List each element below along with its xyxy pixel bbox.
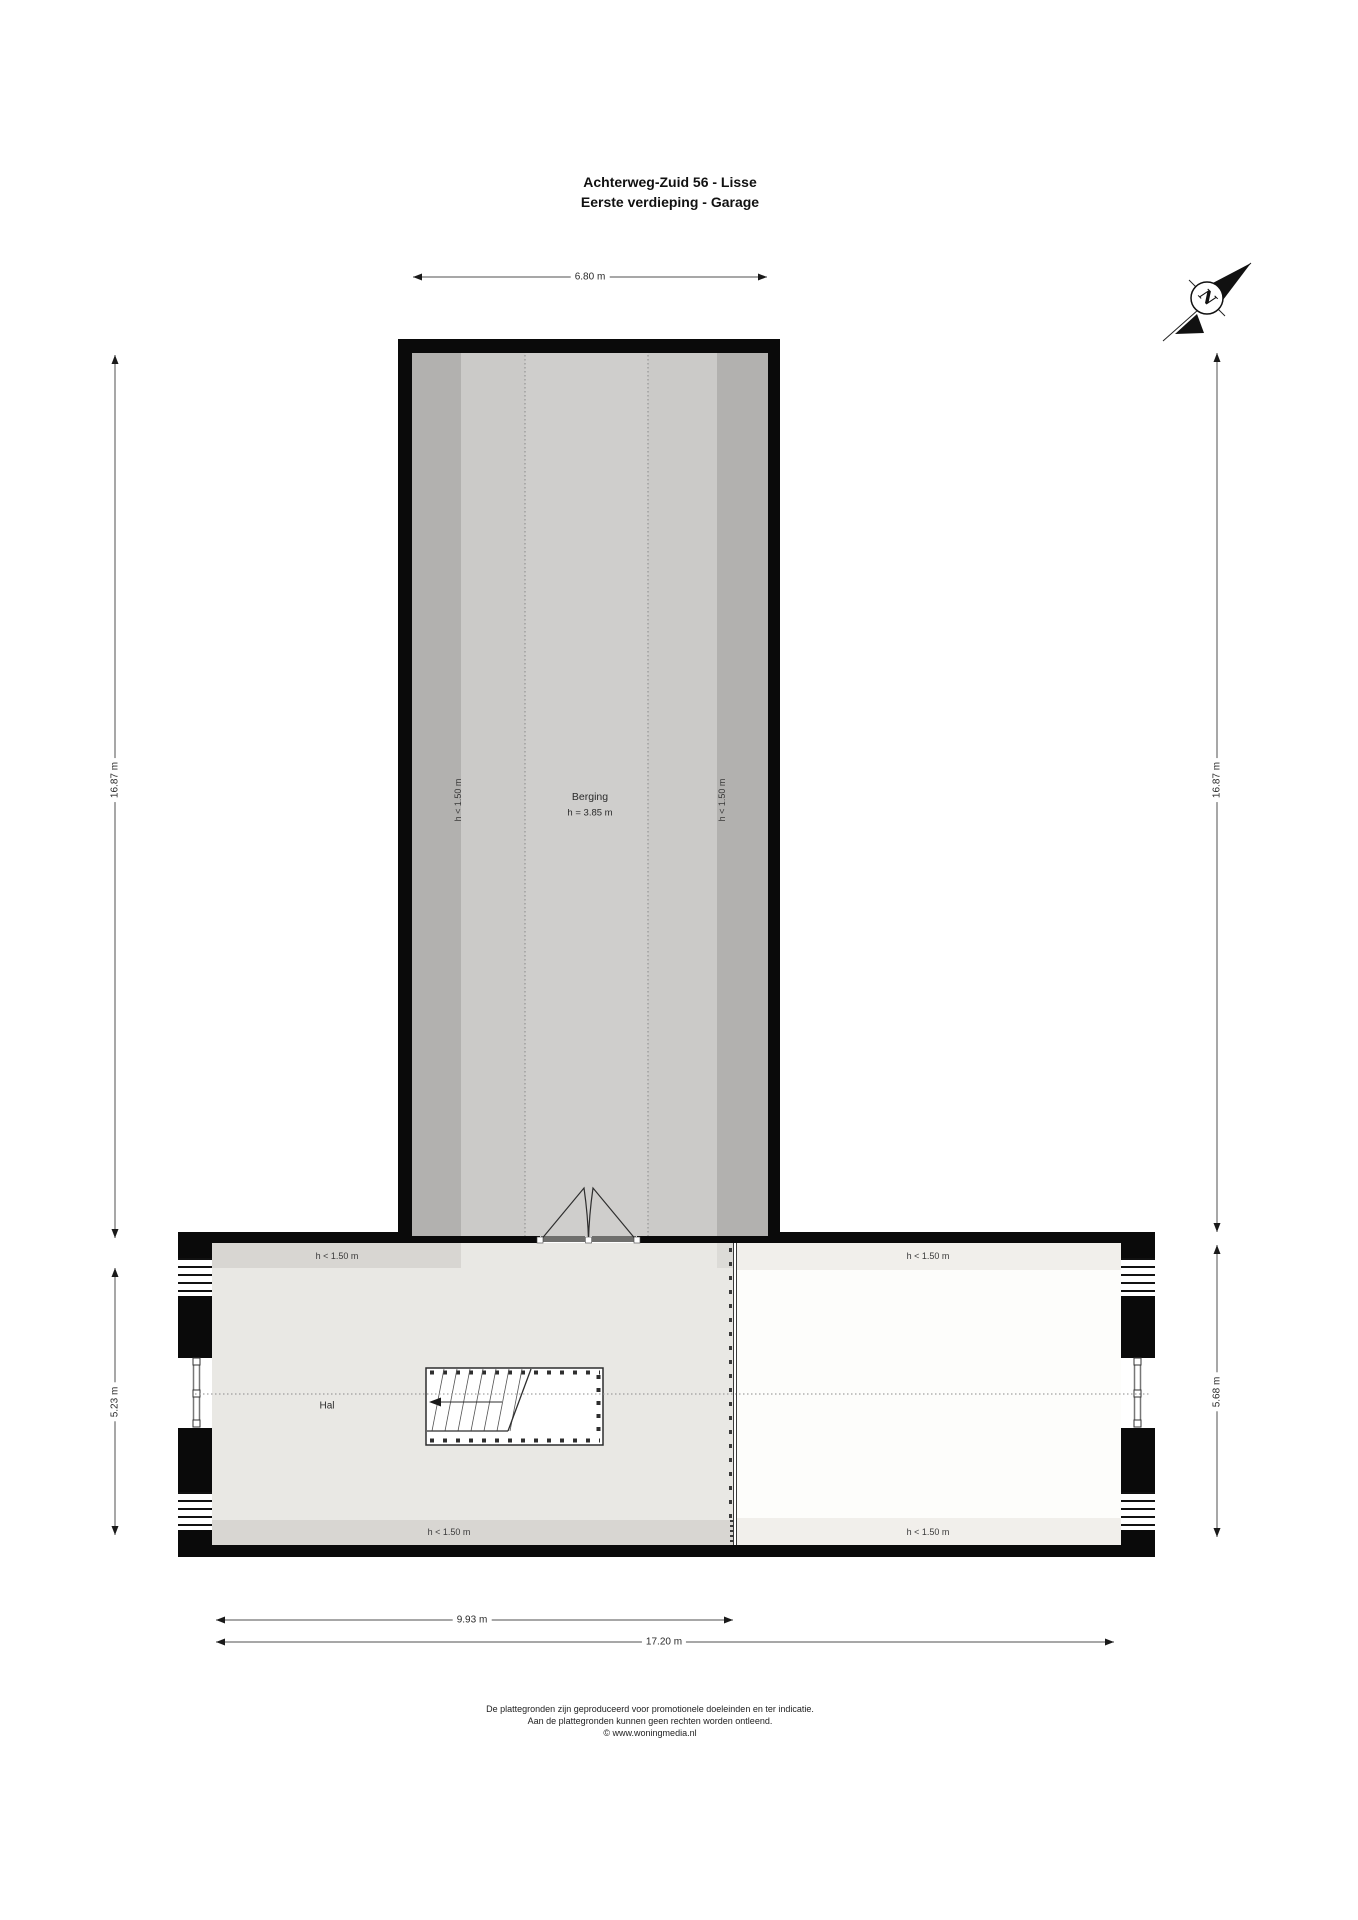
berging-wall-top (398, 339, 780, 353)
hal-room-label: Hal (319, 1401, 334, 1412)
copyright-line: © www.woningmedia.nl (486, 1727, 814, 1739)
window-left-bottom (178, 1492, 212, 1530)
window-left-top (178, 1258, 212, 1296)
berging-height-label: h = 3.85 m (567, 808, 612, 819)
disclaimer-text: De plattegronden zijn geproduceerd voor … (486, 1703, 814, 1739)
compass-north-icon: N (1163, 263, 1251, 341)
dim-right-total-height: 16.87 m (1212, 758, 1223, 802)
dim-wing-width: 6.80 m (571, 272, 610, 283)
compass-north-label: N (1194, 285, 1221, 312)
berging-wall-left (398, 339, 412, 1243)
berging-wall-right (768, 339, 780, 1243)
floorplan-page: Achterweg-Zuid 56 - Lisse Eerste verdiep… (0, 0, 1358, 1920)
dim-total-width: 17.20 m (642, 1637, 686, 1648)
bar-wall-top-right (780, 1232, 1155, 1243)
berging-lowheight-right-label: h < 1.50 m (717, 779, 727, 822)
dim-hal-width: 9.93 m (453, 1615, 492, 1626)
bar-wall-bottom (178, 1545, 1155, 1557)
plan-title: Achterweg-Zuid 56 - Lisse Eerste verdiep… (581, 172, 759, 212)
right-section-floor (737, 1243, 1121, 1545)
berging-lowheight-left-label: h < 1.50 m (453, 779, 463, 822)
hal-low-band-top-patch (717, 1243, 733, 1268)
right-lowheight-bottom-label: h < 1.50 m (907, 1527, 950, 1537)
hal-floor (212, 1243, 733, 1545)
disclaimer-line1: De plattegronden zijn geproduceerd voor … (486, 1703, 814, 1715)
window-left-middle (178, 1358, 212, 1428)
window-right-top (1121, 1258, 1155, 1296)
window-right-middle (1121, 1358, 1155, 1428)
window-right-bottom (1121, 1492, 1155, 1530)
bar-wall-under-wing-left (412, 1236, 540, 1243)
hal-lowheight-top-label: h < 1.50 m (316, 1251, 359, 1261)
berging-room-label: Berging (572, 791, 608, 803)
bar-wall-under-wing-right (637, 1236, 768, 1243)
dim-bar-left-height: 5.23 m (110, 1383, 121, 1422)
dim-left-total-height: 16.87 m (110, 758, 121, 802)
plan-title-address: Achterweg-Zuid 56 - Lisse (581, 172, 759, 192)
dim-bar-right-height: 5.68 m (1212, 1373, 1223, 1412)
disclaimer-line2: Aan de plattegronden kunnen geen rechten… (486, 1715, 814, 1727)
hal-lowheight-bottom-label: h < 1.50 m (428, 1527, 471, 1537)
hal-low-band-bottom (212, 1520, 733, 1545)
plan-title-floor: Eerste verdieping - Garage (581, 192, 759, 212)
right-lowheight-top-label: h < 1.50 m (907, 1251, 950, 1261)
